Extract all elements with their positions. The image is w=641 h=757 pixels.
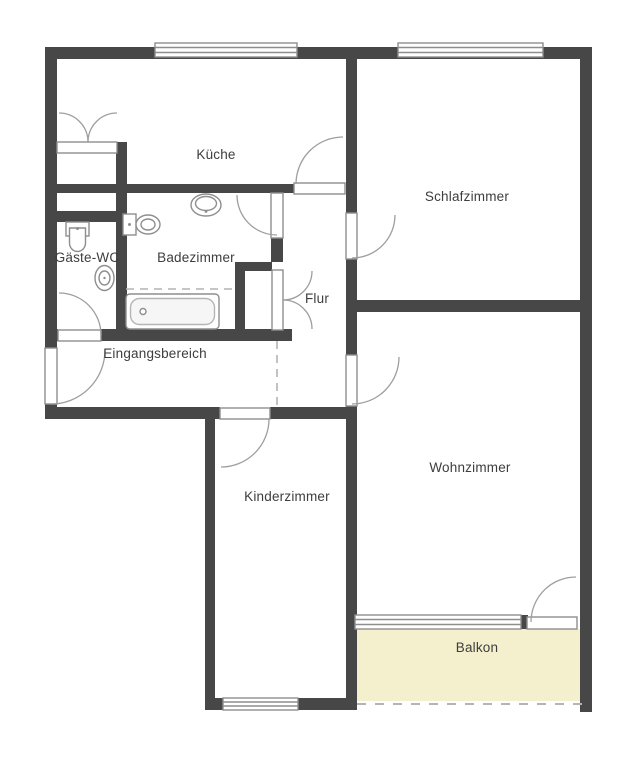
badezimmer-toilet-icon [123,214,160,235]
wall-badezimmer-flur [271,238,283,262]
label-wohnzimmer: Wohnzimmer [429,460,511,475]
label-kueche: Küche [196,147,235,162]
schlafzimmer-door-leaf [346,213,357,259]
gaestewc-sink-icon [66,222,89,252]
wall-middle-upper [346,47,357,213]
kinderzimmer-window [223,698,298,710]
wall-schlafzimmer-wohnzimmer [346,300,592,312]
kueche-door-leaf [294,183,345,194]
wall-middle-lower [346,406,357,710]
kueche-closet-door-sill [57,142,117,153]
badezimmer-sink-icon [191,194,221,216]
gaestewc-door-sill [58,330,101,341]
badezimmer-bathtub-icon [126,294,219,329]
kueche-closet-arc-right [88,113,117,142]
entrance-door-leaf [45,348,57,404]
wohnzimmer-door-arc [352,357,399,404]
label-flur: Flur [305,291,329,306]
wall-closet-left [235,262,245,330]
kueche-closet-arc-left [59,113,88,142]
wall-outer-right [580,47,592,712]
kinderzimmer-door-arc [221,419,269,467]
label-badezimmer: Badezimmer [157,250,235,265]
balkon-window [355,615,521,629]
flur-closet-door-leaf [272,270,283,330]
label-eingangsbereich: Eingangsbereich [103,346,207,361]
wohnzimmer-door-leaf [346,355,357,406]
wall-gaestewc-top [45,211,127,222]
kinderzimmer-door-sill [220,408,270,419]
balkon-door-arc [531,577,576,622]
label-gaeste-wc: Gäste-WC [55,250,120,265]
wall-outer-left-upper [45,47,57,348]
label-schlafzimmer: Schlafzimmer [425,189,509,204]
balkon-door-sill [527,617,577,629]
wall-badezimmer-bottom-right [101,329,292,341]
wall-kinderzimmer-left [205,419,215,710]
floorplan-canvas: Küche Schlafzimmer Gäste-WC Badezimmer F… [0,0,641,757]
walls [45,47,592,712]
kueche-window [155,43,297,57]
entrance-door-arc [51,350,105,404]
wall-eingang-bottom-left [45,407,220,419]
gaestewc-door-arc [59,293,101,335]
wall-badezimmer-bottom-left [45,329,58,341]
floorplan-drawing: Küche Schlafzimmer Gäste-WC Badezimmer F… [0,0,641,757]
schlafzimmer-door-arc [352,215,395,258]
wall-eingang-bottom-right [270,407,357,419]
label-kinderzimmer: Kinderzimmer [244,489,330,504]
label-balkon: Balkon [456,640,498,655]
badezimmer-door-leaf [271,193,283,238]
kueche-door-arc [296,137,343,184]
wall-kueche-bottom [45,184,294,193]
gaestewc-toilet-icon [95,266,114,291]
schlafzimmer-window [398,43,543,57]
